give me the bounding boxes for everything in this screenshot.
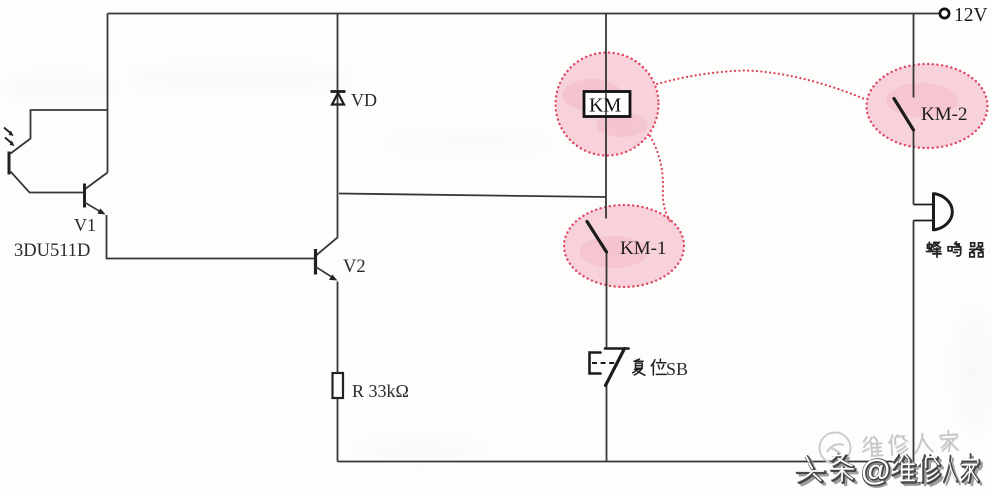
svg-text:V1: V1	[74, 215, 96, 235]
svg-text:KM: KM	[589, 95, 621, 117]
svg-text:VD: VD	[351, 90, 377, 110]
svg-text:12V: 12V	[954, 5, 988, 26]
svg-text:V2: V2	[343, 257, 366, 277]
svg-text:KM-1: KM-1	[620, 238, 666, 259]
svg-text:KM-2: KM-2	[921, 104, 967, 125]
svg-text:3DU511D: 3DU511D	[14, 241, 90, 261]
svg-text:R 33kΩ: R 33kΩ	[352, 381, 409, 401]
svg-text:@: @	[861, 454, 890, 487]
svg-text:SB: SB	[666, 359, 688, 379]
